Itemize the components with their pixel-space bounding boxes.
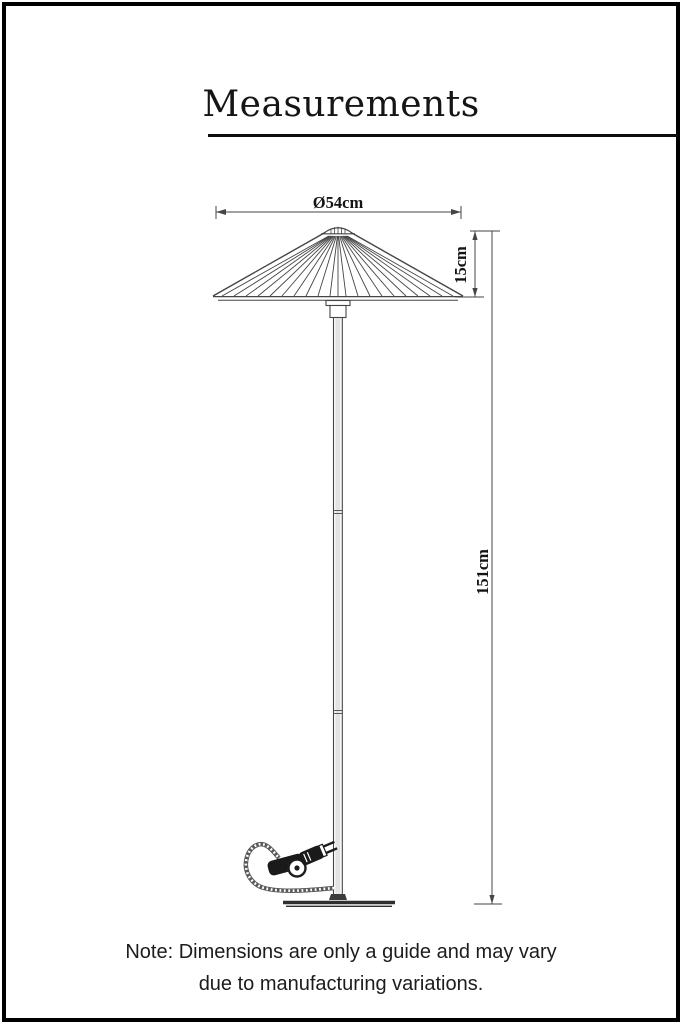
disclaimer-note: Note: Dimensions are only a guide and ma…: [0, 936, 682, 1000]
lamp-socket: [326, 301, 350, 318]
disclaimer-note-line1: Note: Dimensions are only a guide and ma…: [0, 936, 682, 968]
lamp-base: [283, 894, 395, 906]
shade-dome-ticks: [331, 227, 345, 234]
shade-pleats: [222, 236, 453, 296]
shade-height-label: 15cm: [451, 246, 470, 284]
power-plug: [298, 839, 338, 867]
lamp-shade: [213, 227, 463, 301]
lamp-pole: [334, 318, 343, 898]
disclaimer-note-line2: due to manufacturing variations.: [0, 968, 682, 1000]
total-height-label: 151cm: [473, 549, 492, 595]
shade-diameter-label: Ø54cm: [313, 193, 364, 212]
measurement-diagram: Ø54cm: [0, 0, 682, 1024]
